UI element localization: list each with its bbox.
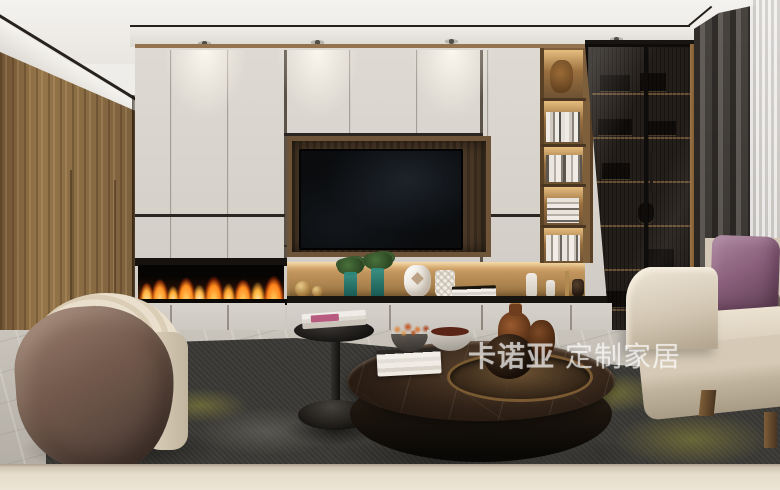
stacked-books [547,198,579,223]
downlight-glow [275,50,361,122]
sofa-wood-leg [764,412,777,448]
cabinet-horizontal-seam [135,214,285,217]
twig-ornament [550,60,573,93]
magazine-cover-art [311,314,339,323]
shelf-board [541,225,586,228]
brand-watermark: 卡诺亚定制家居 [468,343,681,371]
foreground-table-edge [0,464,780,490]
purple-pillow [710,235,780,318]
sofa-armrest [626,267,718,349]
dark-pot [572,279,584,297]
television-screen [299,149,463,250]
white-vase [546,280,555,297]
book-row [546,112,580,142]
book-row [546,155,582,182]
teal-glass-vase [344,272,357,297]
linear-fireplace [138,265,284,301]
book-row [546,235,580,261]
watermark-brand-text: 卡诺亚 [468,340,555,373]
living-room-render: 卡诺亚定制家居 [0,0,780,490]
bowl-contents [431,327,469,336]
glass-door-handle [650,151,653,193]
fireplace-flames [138,265,284,301]
shelf-board [541,98,586,101]
shelf-board [541,144,586,147]
teal-glass-vase [371,268,384,297]
amber-vase-neck [509,304,522,316]
downlight-glow [409,50,495,122]
black-countertop [287,296,612,303]
orange-flowers [389,321,431,338]
gold-sphere-decor [295,281,311,297]
gold-candlestick [565,271,569,297]
white-vase [526,273,537,297]
downlight-glow [162,50,248,122]
sofa-wood-leg [699,390,717,416]
watermark-tagline-text: 定制家居 [565,340,681,373]
shelf-board [541,184,586,187]
